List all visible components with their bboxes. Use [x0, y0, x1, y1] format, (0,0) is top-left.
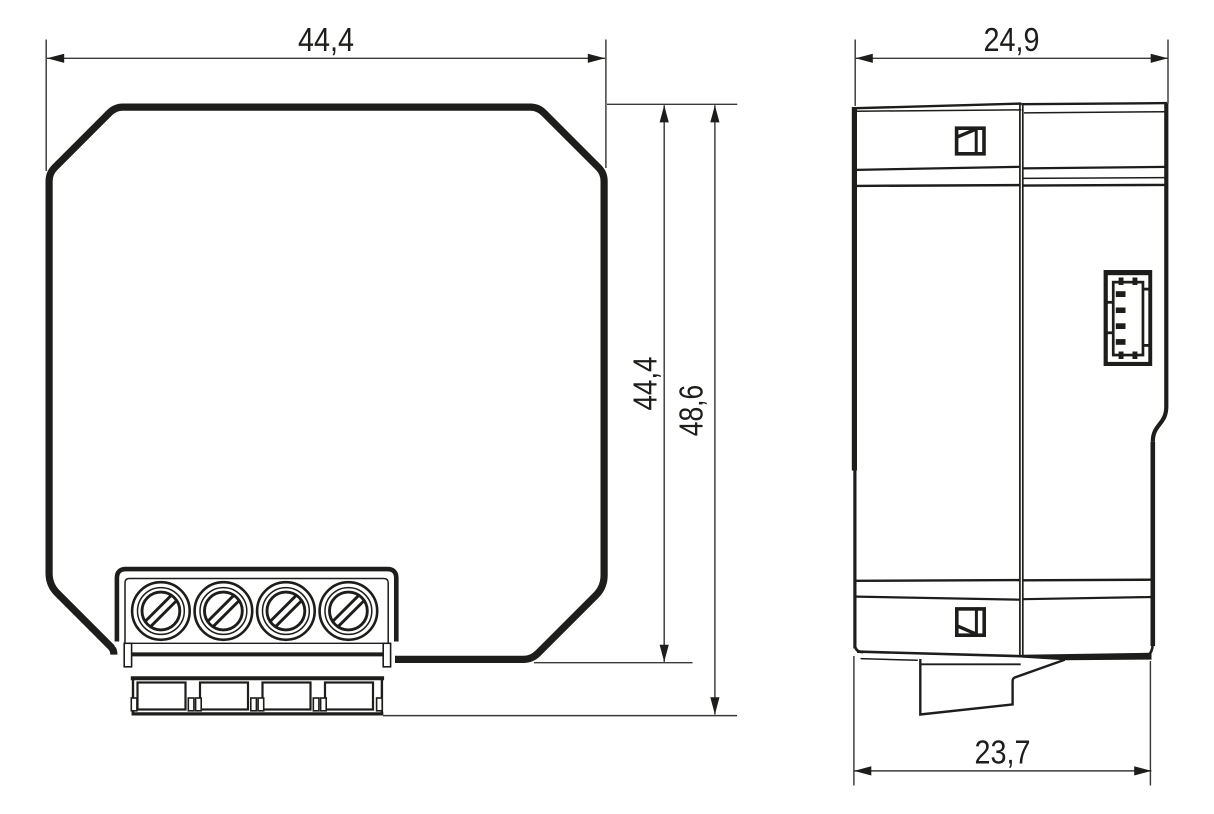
svg-text:44,4: 44,4 — [298, 21, 354, 58]
svg-text:44,4: 44,4 — [626, 357, 663, 411]
svg-text:24,9: 24,9 — [984, 21, 1040, 58]
svg-text:23,7: 23,7 — [975, 733, 1031, 770]
svg-text:48,6: 48,6 — [673, 385, 710, 437]
